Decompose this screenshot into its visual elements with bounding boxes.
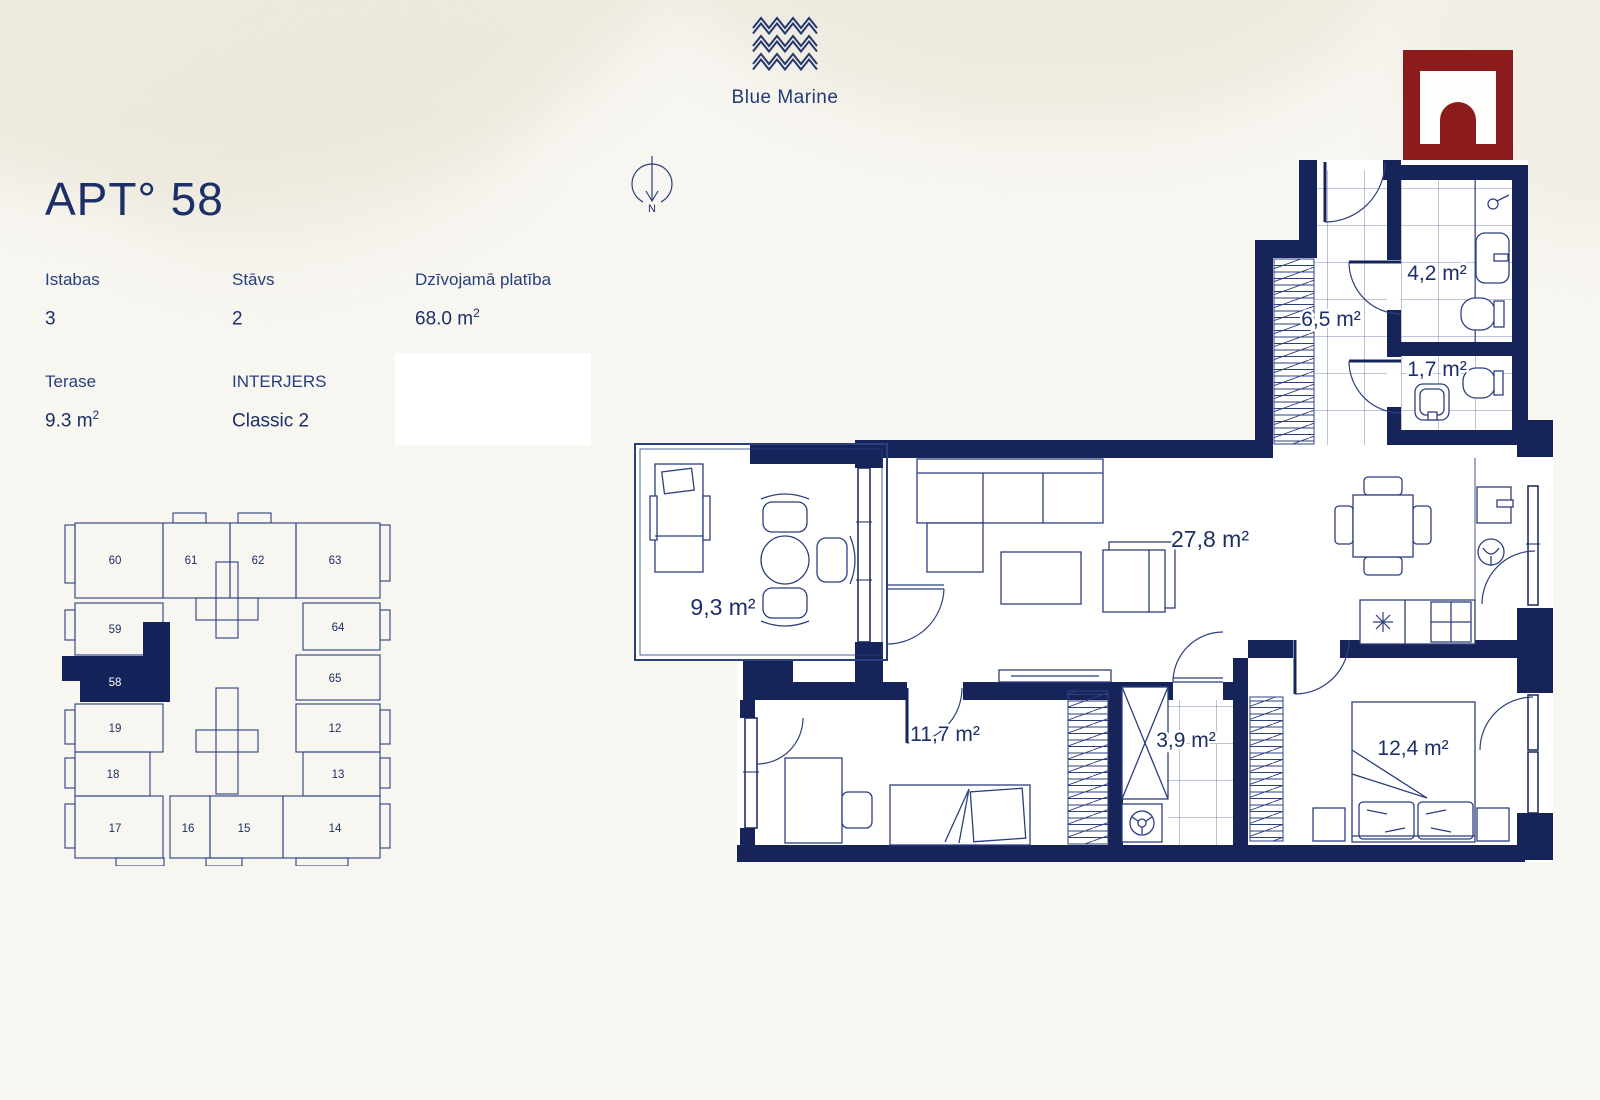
toilet-icon	[1461, 298, 1495, 330]
balcony-railing	[1528, 752, 1538, 813]
pillow-icon	[970, 788, 1025, 842]
terrace-window	[858, 468, 870, 642]
spec-living-area: Dzīvojamā platība 68.0 m2	[415, 270, 645, 330]
pillow-icon	[1359, 802, 1414, 839]
spec-terrace: Terase 9.3 m2	[45, 372, 230, 432]
toilet-icon	[1463, 368, 1495, 398]
svg-text:12: 12	[329, 723, 342, 735]
svg-text:59: 59	[109, 624, 122, 636]
cooktop-icon	[1373, 612, 1393, 632]
svg-text:63: 63	[329, 555, 342, 567]
room-area-label: 27,8 m²	[1171, 526, 1249, 552]
dining-table-icon	[1353, 495, 1413, 557]
svg-text:17: 17	[109, 823, 122, 835]
spec-interior: INTERJERS Classic 2	[232, 372, 417, 432]
svg-text:13: 13	[332, 769, 345, 781]
svg-text:58: 58	[109, 677, 122, 689]
room-area-label: 11,7 m²	[910, 723, 980, 746]
svg-text:64: 64	[332, 622, 345, 634]
svg-text:14: 14	[329, 823, 342, 835]
building-key-plan[interactable]: 60 61 62 63 59 64 58 65 19 12 18 13 17 1…	[56, 498, 396, 866]
waves-logo-icon	[749, 14, 821, 76]
bedroom1-balcony-window	[745, 718, 757, 828]
spec-rooms: Istabas 3	[45, 270, 230, 330]
terrace-table-icon	[761, 536, 809, 584]
room-area-label: 4,2 m²	[1407, 262, 1467, 285]
chair-icon	[842, 792, 872, 828]
bedroom2-balcony-door	[1528, 695, 1538, 750]
svg-text:60: 60	[109, 555, 122, 567]
arch-icon	[1420, 71, 1496, 144]
room-area-label: 6,5 m²	[1301, 308, 1361, 331]
nightstand-icon	[1477, 808, 1509, 841]
desk-icon	[785, 758, 842, 843]
svg-text:15: 15	[238, 823, 251, 835]
svg-text:16: 16	[182, 823, 195, 835]
floor-plan: 6,5 m² 4,2 m² 1,7 m² 27,8 m² 9,3 m² 11,7…	[625, 152, 1555, 867]
svg-text:65: 65	[329, 673, 342, 685]
svg-text:61: 61	[185, 555, 198, 567]
room-area-label: 1,7 m²	[1407, 358, 1467, 381]
svg-text:19: 19	[109, 723, 122, 735]
nightstand-icon	[1313, 808, 1345, 841]
page: Blue Marine APT° 58 Istabas 3 Stāvs 2 Dz…	[0, 0, 1600, 1100]
coffee-table-icon	[1001, 552, 1081, 604]
room-area-label: 12,4 m²	[1377, 737, 1448, 760]
utility-fixtures	[1122, 687, 1168, 842]
kitchen-balcony-window	[1528, 486, 1538, 605]
chair-icon	[763, 502, 807, 532]
info-panel	[395, 353, 591, 445]
spec-floor: Stāvs 2	[232, 270, 417, 330]
brand-name: Blue Marine	[700, 87, 870, 109]
svg-text:18: 18	[107, 769, 120, 781]
pillow-icon	[1418, 802, 1473, 839]
chair-icon	[817, 538, 847, 582]
sofa-icon	[917, 459, 1103, 523]
brand-header: Blue Marine	[700, 14, 870, 109]
svg-text:62: 62	[252, 555, 265, 567]
chair-icon	[763, 588, 807, 618]
room-area-label: 3,9 m²	[1156, 729, 1216, 752]
page-title: APT° 58	[45, 172, 224, 226]
room-area-label: 9,3 m²	[690, 594, 756, 620]
shower-icon	[1488, 199, 1498, 209]
developer-logo	[1403, 50, 1513, 164]
